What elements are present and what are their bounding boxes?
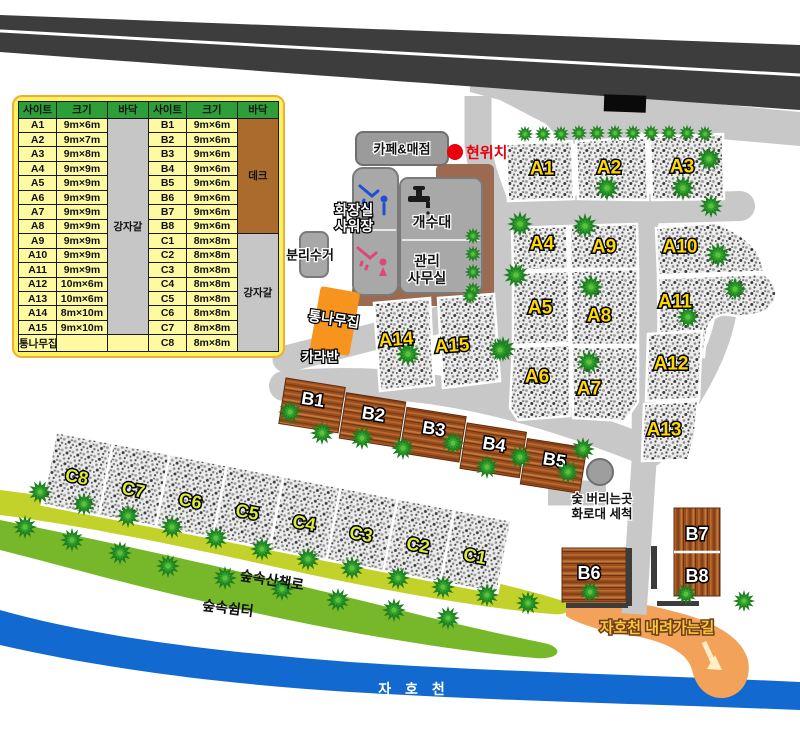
- cell-site: A4: [19, 161, 57, 175]
- site-label-A2: A2: [597, 158, 621, 179]
- river-path-label: 자호천 내려가는길: [600, 619, 715, 637]
- office-label-line2: 사무실: [408, 270, 447, 286]
- tree-icon: [517, 126, 534, 143]
- cell-size: 8m×8m: [187, 320, 238, 334]
- header-floor-b: 바닥: [237, 102, 278, 119]
- cell-size: 8m×8m: [187, 335, 238, 352]
- sink-label: 개수대: [413, 214, 452, 230]
- cell-size: 9m×10m: [57, 320, 108, 334]
- recycle-label: 분리수거: [286, 248, 334, 263]
- site-label-B3: B3: [421, 417, 447, 440]
- current-location-dot: [447, 144, 463, 160]
- header-size-b: 크기: [187, 102, 238, 119]
- site-label-A10: A10: [663, 237, 698, 258]
- charcoal-label-line1: 숯 버리는곳: [572, 491, 633, 506]
- cell-site: A14: [19, 306, 57, 320]
- site-label-A3: A3: [670, 157, 694, 178]
- header-site-b: 사이트: [148, 102, 186, 119]
- cell-size: 9m×9m: [57, 190, 108, 204]
- legend-header-row: 사이트 크기 바닥 사이트 크기 바닥: [19, 102, 279, 119]
- cell-site: C6: [148, 306, 186, 320]
- cell-floor-gravel-c: 강자갈: [237, 234, 278, 352]
- site-label-A11: A11: [658, 292, 692, 313]
- header-size-a: 크기: [57, 102, 108, 119]
- site-label-A4: A4: [530, 234, 555, 255]
- cell-size: 9m×8m: [57, 147, 108, 161]
- cell-size: 9m×9m: [57, 248, 108, 262]
- table-row: A1 9m×6m 강자갈 B1 9m×6m 데크: [19, 118, 279, 132]
- site-label-B1: B1: [300, 388, 326, 411]
- cell-site: A10: [19, 248, 57, 262]
- cell-size: 9m×9m: [57, 263, 108, 277]
- cell-size: 9m×6m: [187, 132, 238, 146]
- cell-site: B3: [148, 147, 186, 161]
- cell-site: A6: [19, 190, 57, 204]
- site-label-A12: A12: [654, 354, 689, 375]
- toilet-label-line1: 화장실: [335, 202, 374, 218]
- cell-size: [57, 335, 108, 352]
- charcoal-label-line2: 화로대 세척: [572, 506, 633, 521]
- campground-map-page: C8 C7 C6 C5 C4 C3 C2 C1 B1 B2 B3 B4 B5: [0, 0, 800, 730]
- cell-size: 8m×8m: [187, 234, 238, 248]
- cell-size: 9m×7m: [57, 132, 108, 146]
- tree-icon: [535, 126, 552, 143]
- river-label: 자 호 천: [378, 681, 449, 697]
- cell-site: A5: [19, 176, 57, 190]
- cell-size: 10m×6m: [57, 291, 108, 305]
- post-left: [626, 548, 632, 606]
- charcoal-dump-circle: [587, 459, 613, 485]
- cell-site: B6: [148, 190, 186, 204]
- site-label-A13: A13: [647, 420, 682, 441]
- cell-site: C7: [148, 320, 186, 334]
- cell-size: 9m×9m: [57, 205, 108, 219]
- cell-site-cabin: 통나무집: [19, 335, 57, 352]
- cell-size: 8m×8m: [187, 263, 238, 277]
- cell-size: 9m×9m: [57, 161, 108, 175]
- cell-site: C2: [148, 248, 186, 262]
- cell-site: B8: [148, 219, 186, 233]
- cell-site: B1: [148, 118, 186, 132]
- cell-site: A9: [19, 234, 57, 248]
- cell-size: 9m×6m: [187, 176, 238, 190]
- site-label-A9: A9: [592, 237, 616, 258]
- cell-site: B2: [148, 132, 186, 146]
- current-location-label: 현위치: [466, 145, 507, 162]
- cell-site: A3: [19, 147, 57, 161]
- cell-site: A7: [19, 205, 57, 219]
- site-label-A14: A14: [378, 328, 415, 351]
- site-legend-table: 사이트 크기 바닥 사이트 크기 바닥 A1 9m×6m 강자갈 B1 9m×6…: [12, 95, 285, 358]
- cell-site: A1: [19, 118, 57, 132]
- site-label-B6: B6: [577, 563, 600, 583]
- cell-size: 9m×9m: [57, 234, 108, 248]
- site-label-A1: A1: [530, 159, 555, 180]
- office-label-line1: 관리: [414, 253, 440, 269]
- table-row: A9 9m×9m C1 8m×8m 강자갈: [19, 234, 279, 248]
- cell-size: 9m×6m: [57, 118, 108, 132]
- site-label-A5: A5: [528, 298, 553, 319]
- curb-left: [566, 603, 628, 608]
- cell-size: 8m×8m: [187, 306, 238, 320]
- site-label-A6: A6: [525, 367, 549, 388]
- cell-site: C5: [148, 291, 186, 305]
- post-right: [651, 546, 657, 589]
- cell-size: 8m×8m: [187, 248, 238, 262]
- cafe-label: 카페&매점: [373, 142, 430, 157]
- tree-icon: [733, 590, 755, 612]
- cell-size: 9m×9m: [57, 176, 108, 190]
- cell-site: A2: [19, 132, 57, 146]
- header-floor-a: 바닥: [107, 102, 148, 119]
- cell-size: 9m×6m: [187, 219, 238, 233]
- cell-site: C3: [148, 263, 186, 277]
- cell-size: 9m×6m: [187, 205, 238, 219]
- cell-size: 9m×6m: [187, 118, 238, 132]
- cell-size: 9m×9m: [57, 219, 108, 233]
- legend-grid: 사이트 크기 바닥 사이트 크기 바닥 A1 9m×6m 강자갈 B1 9m×6…: [18, 101, 279, 352]
- cell-size: 10m×6m: [57, 277, 108, 291]
- cell-site: C8: [148, 335, 186, 352]
- curb-right: [657, 601, 699, 606]
- caravan-label: 카라반: [301, 349, 339, 365]
- cell-size: 8m×8m: [187, 291, 238, 305]
- cell-size: 8m×10m: [57, 306, 108, 320]
- site-label-A7: A7: [577, 379, 601, 400]
- cell-site: B4: [148, 161, 186, 175]
- cell-site: A12: [19, 277, 57, 291]
- cell-floor-gravel-a: 강자갈: [107, 118, 148, 335]
- cell-site: A11: [19, 263, 57, 277]
- cell-size: 9m×6m: [187, 147, 238, 161]
- cell-size: 8m×8m: [187, 277, 238, 291]
- site-label-B2: B2: [360, 402, 386, 425]
- upper-cross-road: [455, 206, 740, 214]
- gate-block: [604, 94, 647, 112]
- cell-site: C4: [148, 277, 186, 291]
- header-site-a: 사이트: [19, 102, 57, 119]
- cell-site: B7: [148, 205, 186, 219]
- site-label-A8: A8: [587, 306, 611, 327]
- cell-size: 9m×6m: [187, 190, 238, 204]
- cell-floor-deck: 데크: [237, 118, 278, 234]
- toilet-label-line2: 샤워장: [335, 218, 374, 234]
- cell-site: A15: [19, 320, 57, 334]
- site-label-B7: B7: [685, 524, 708, 544]
- cell-site: C1: [148, 234, 186, 248]
- cell-site: B5: [148, 176, 186, 190]
- cell-size: 9m×6m: [187, 161, 238, 175]
- cell-site: A8: [19, 219, 57, 233]
- cell-site: A13: [19, 291, 57, 305]
- site-label-B4: B4: [481, 433, 507, 456]
- site-label-A15: A15: [434, 334, 471, 357]
- cell-floor-empty: [107, 335, 148, 352]
- site-label-B8: B8: [685, 566, 708, 586]
